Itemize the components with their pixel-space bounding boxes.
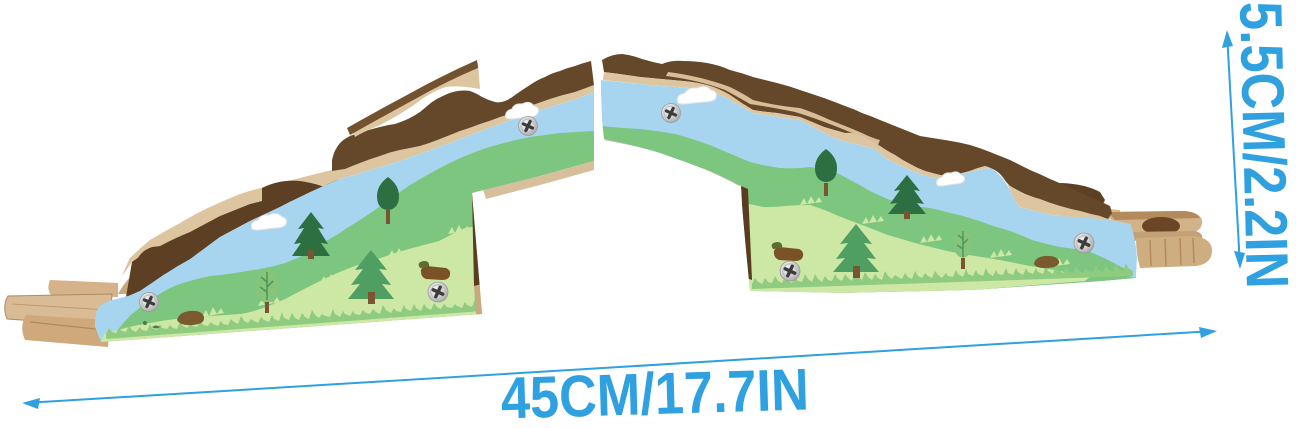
svg-text:5.5CM/2.2IN: 5.5CM/2.2IN (1227, 1, 1296, 290)
svg-text:45CM/17.7IN: 45CM/17.7IN (500, 356, 810, 428)
